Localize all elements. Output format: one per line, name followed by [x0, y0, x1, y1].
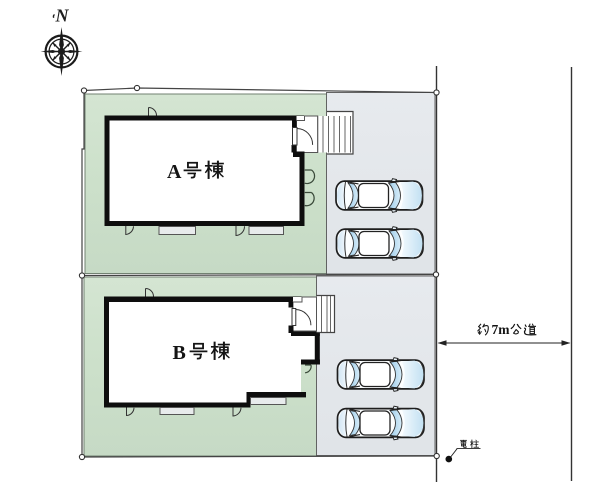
svg-text:N: N: [55, 6, 70, 26]
svg-text:A: A: [167, 161, 182, 183]
svg-text:7m: 7m: [492, 322, 511, 337]
svg-text:B: B: [173, 342, 186, 364]
